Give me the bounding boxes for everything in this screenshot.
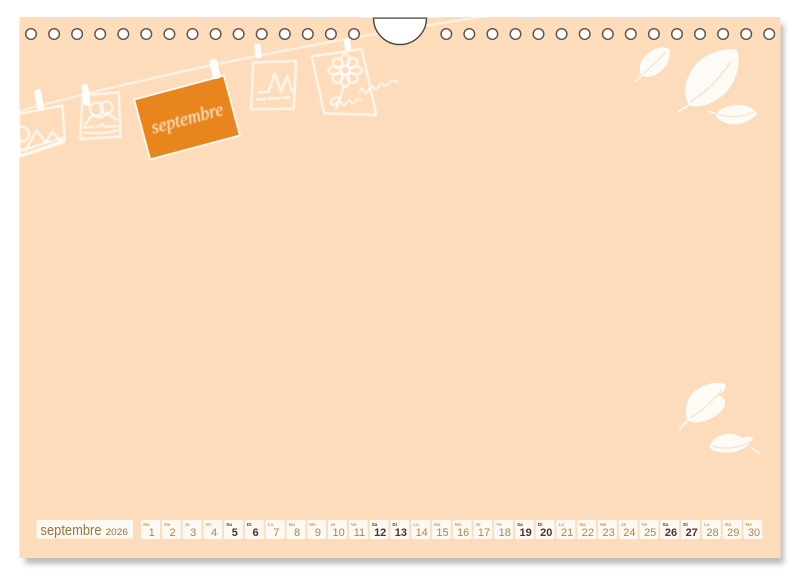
svg-text:3: 3 [190,527,196,539]
svg-text:20: 20 [540,527,552,539]
svg-text:19: 19 [519,527,531,539]
svg-text:9: 9 [315,527,321,539]
svg-text:30: 30 [748,527,760,539]
svg-text:1: 1 [149,527,155,539]
svg-text:23: 23 [602,527,614,539]
svg-text:22: 22 [582,527,594,539]
svg-text:Di: Di [247,522,252,527]
svg-text:7: 7 [273,527,279,539]
svg-text:6: 6 [252,527,258,539]
svg-text:2: 2 [169,527,175,539]
svg-text:15: 15 [436,527,448,539]
svg-text:25: 25 [644,527,656,539]
svg-text:29: 29 [727,527,739,539]
svg-text:11: 11 [354,527,365,539]
svg-text:septembre: septembre [41,523,102,539]
svg-text:12: 12 [374,527,386,539]
svg-text:5: 5 [232,527,238,539]
svg-text:18: 18 [499,527,511,539]
svg-text:27: 27 [686,527,698,539]
svg-text:21: 21 [561,527,573,539]
svg-text:16: 16 [457,527,469,539]
svg-text:2026: 2026 [106,527,129,538]
svg-text:13: 13 [395,527,407,539]
svg-text:24: 24 [623,527,635,539]
svg-text:26: 26 [665,527,677,539]
svg-text:4: 4 [211,527,217,539]
svg-text:28: 28 [706,527,718,539]
svg-text:10: 10 [332,527,344,539]
svg-text:17: 17 [478,527,490,539]
svg-text:8: 8 [294,527,300,539]
svg-text:14: 14 [416,527,428,539]
